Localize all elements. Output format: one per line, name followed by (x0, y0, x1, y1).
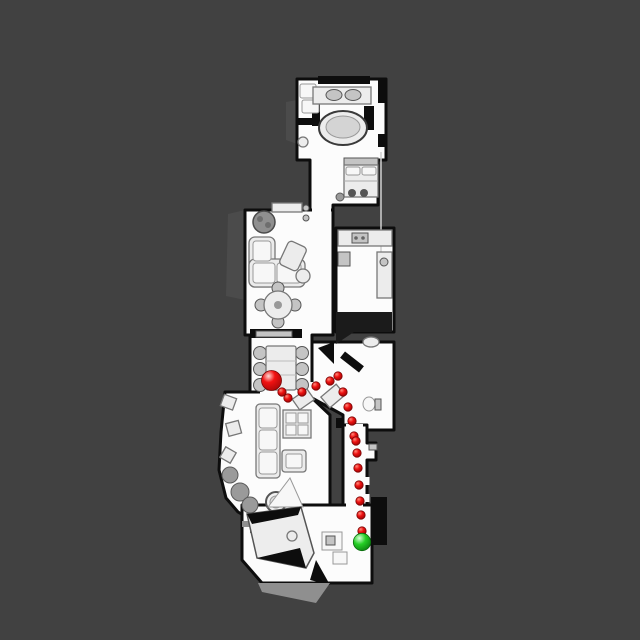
decor-item (303, 215, 309, 221)
goal-marker[interactable] (353, 533, 370, 550)
potted-plant (253, 211, 275, 233)
start-marker[interactable] (262, 371, 282, 391)
goal-sphere[interactable] (353, 533, 370, 550)
doorway (346, 424, 363, 432)
toilet-fixture (298, 137, 308, 147)
tilted-chair (226, 420, 242, 436)
lower-sofa (256, 404, 280, 478)
toilet (363, 397, 381, 411)
map-viewport[interactable] (0, 0, 640, 640)
goal-area-fixture (333, 552, 347, 564)
wall-segment (336, 418, 344, 428)
navigation-map[interactable] (0, 0, 640, 640)
path-waypoint-dot (344, 403, 352, 411)
path-waypoint-dot (356, 497, 364, 505)
path-waypoint-dot (348, 417, 356, 425)
scan-shadow (226, 210, 245, 300)
path-waypoint-dot (354, 464, 362, 472)
doorway (312, 206, 331, 215)
door-dash (366, 477, 370, 485)
sideboard (256, 331, 292, 337)
small-stool (287, 531, 297, 541)
path-waypoint-dot (334, 372, 342, 380)
wall-segment (378, 134, 387, 147)
path-waypoint-dot (355, 481, 363, 489)
path-waypoint-dot (312, 382, 320, 390)
bottom-cabinet (322, 532, 342, 550)
void-zone (336, 312, 392, 332)
scan-shadow (286, 100, 297, 144)
wall-segment (318, 76, 370, 84)
armchair (282, 450, 306, 472)
vanity-double-sink (313, 87, 371, 104)
start-sphere[interactable] (262, 371, 282, 391)
path-waypoint-dot (352, 437, 360, 445)
wall-segment (371, 497, 387, 545)
nightstand (336, 193, 344, 201)
pane-table (283, 410, 311, 438)
door-dash (366, 494, 370, 502)
wall-segment (378, 80, 387, 103)
path-waypoint-dot (298, 388, 306, 396)
bathroom-sink (363, 337, 379, 347)
path-waypoint-dot (326, 377, 334, 385)
path-waypoint-dot (339, 388, 347, 396)
path-waypoint-dot (284, 394, 292, 402)
corridor-shelf (369, 444, 377, 450)
path-waypoint-dot (353, 449, 361, 457)
bed (344, 158, 378, 197)
bathtub (319, 111, 367, 145)
decor-item (303, 205, 309, 211)
console-table (272, 203, 302, 212)
path-waypoint-dot (357, 511, 365, 519)
